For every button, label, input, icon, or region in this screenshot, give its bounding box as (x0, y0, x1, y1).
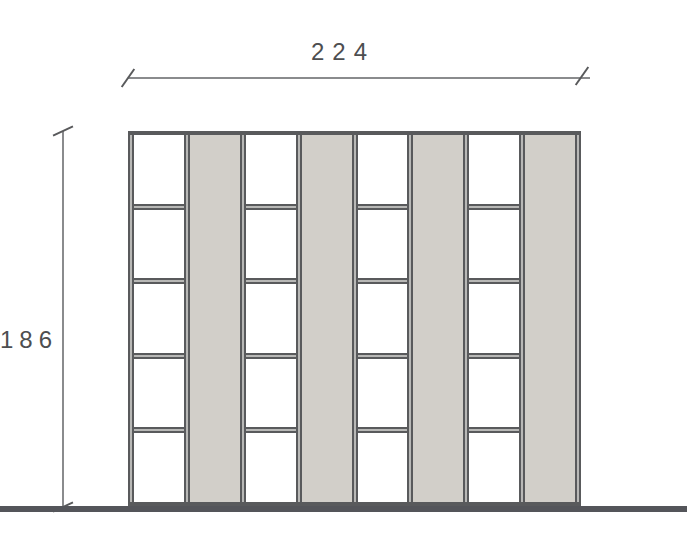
cabinet (128, 131, 581, 506)
bay-cell (134, 284, 184, 353)
open-shelf-bay (358, 135, 408, 502)
column-divider (575, 135, 581, 502)
height-dimension-label: 186 (0, 326, 58, 354)
solid-panel (190, 135, 240, 502)
solid-panel (413, 135, 463, 502)
bay-cell (246, 135, 296, 204)
ground-line (0, 506, 687, 512)
elevation-drawing: 224 186 (0, 0, 687, 560)
width-dimension-label: 224 (288, 38, 398, 66)
bay-cell (358, 135, 408, 204)
solid-panel (302, 135, 352, 502)
open-shelf-bay (469, 135, 519, 502)
bay-cell (469, 433, 519, 502)
bay-cell (469, 284, 519, 353)
bay-cell (358, 433, 408, 502)
height-dimension-line (62, 131, 64, 509)
bay-cell (246, 284, 296, 353)
bay-cell (134, 135, 184, 204)
width-dimension-line (128, 77, 590, 79)
bay-cell (246, 210, 296, 279)
open-shelf-bay (134, 135, 184, 502)
bay-cell (469, 135, 519, 204)
bay-cell (246, 359, 296, 428)
bay-cell (469, 210, 519, 279)
bay-cell (134, 433, 184, 502)
bay-cell (358, 359, 408, 428)
solid-panel (525, 135, 575, 502)
dimension-tick-right (575, 66, 589, 85)
bay-cell (246, 433, 296, 502)
bay-cell (358, 284, 408, 353)
bay-cell (134, 359, 184, 428)
bay-cell (134, 210, 184, 279)
bay-cell (358, 210, 408, 279)
open-shelf-bay (246, 135, 296, 502)
bay-cell (469, 359, 519, 428)
